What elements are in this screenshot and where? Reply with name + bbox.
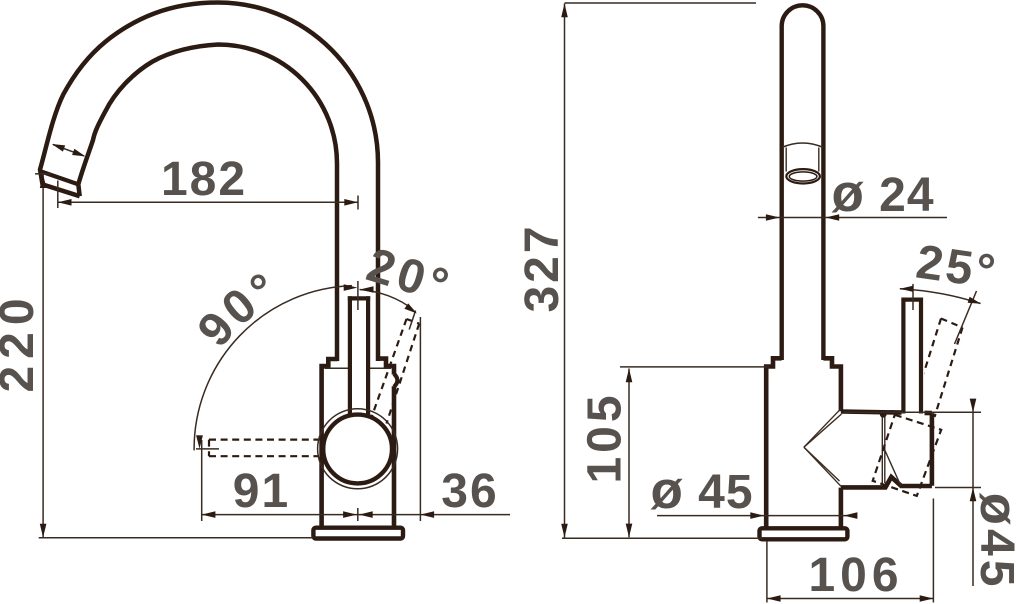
svg-text:105: 105 — [579, 391, 632, 483]
svg-text:ø 45: ø 45 — [650, 461, 753, 520]
svg-text:327: 327 — [516, 223, 569, 312]
svg-text:36: 36 — [441, 465, 498, 518]
svg-text:ø 24: ø 24 — [831, 164, 934, 223]
svg-text:ø45: ø45 — [969, 493, 1016, 591]
svg-text:25°: 25° — [913, 236, 1001, 300]
svg-text:182: 182 — [161, 153, 247, 206]
svg-text:220: 220 — [0, 291, 44, 392]
svg-text:91: 91 — [233, 465, 290, 518]
svg-text:106: 106 — [808, 549, 903, 602]
